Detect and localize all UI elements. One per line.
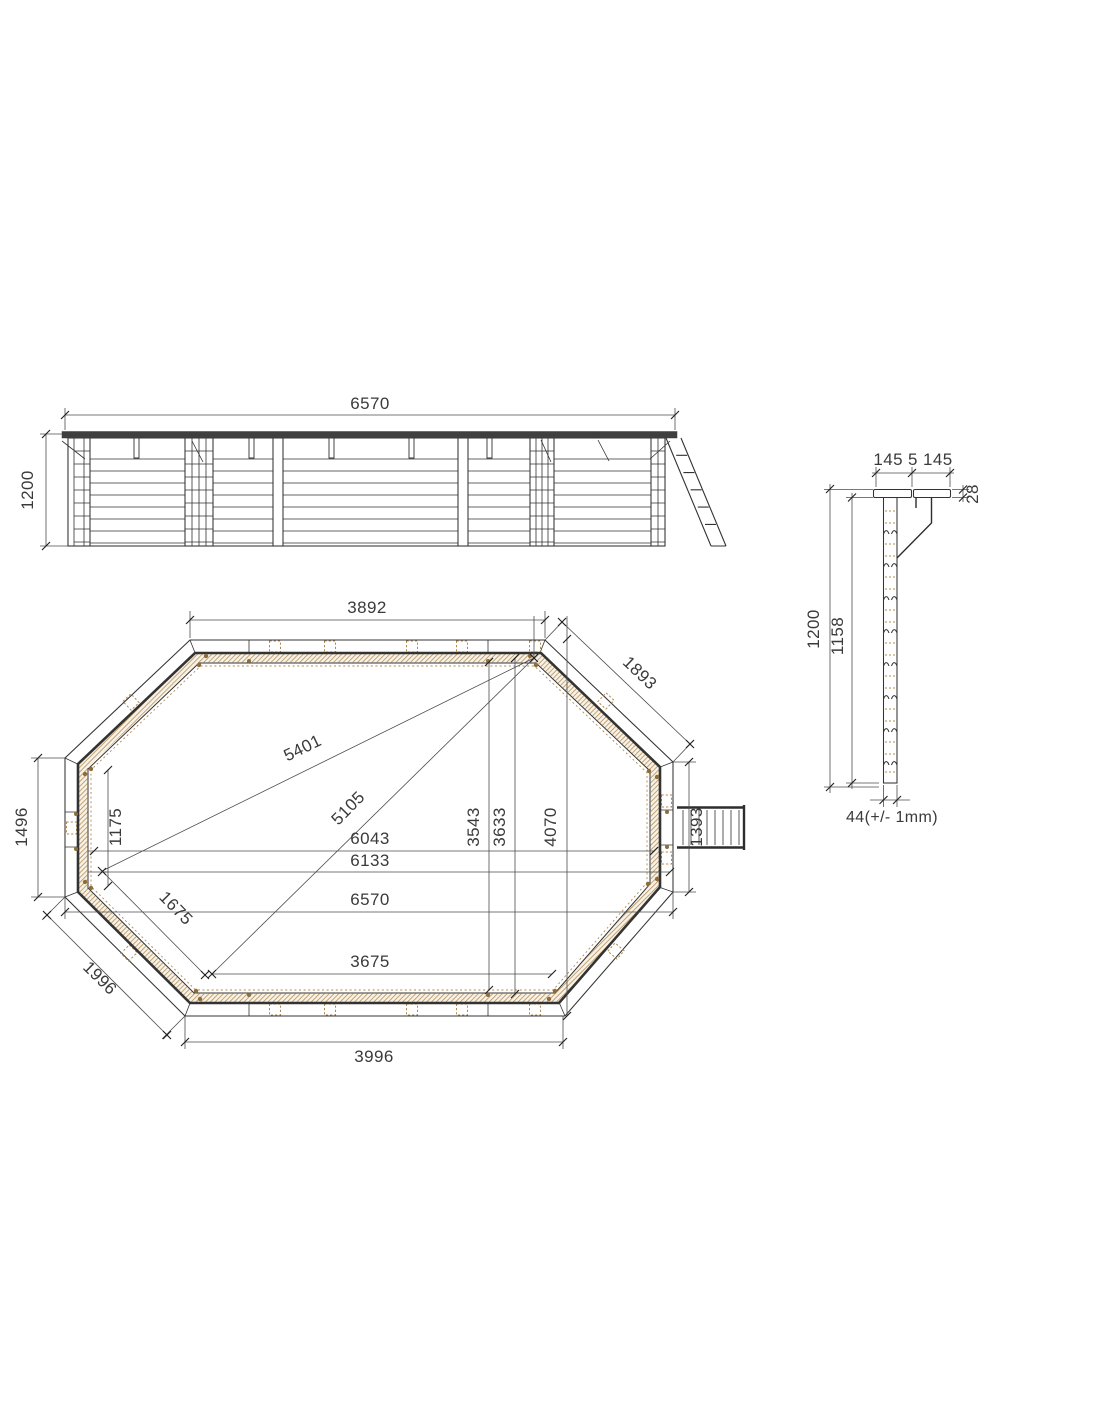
dim-ladder-width: 1393 <box>687 807 706 846</box>
dim-bottom-left-edge: 1996 <box>79 957 120 998</box>
support-brace <box>897 498 932 559</box>
pool-wall-body <box>68 438 665 546</box>
ladder-elevation <box>666 438 726 546</box>
plan-view: 3892 1893 1496 1996 3996 3675 6570 6133 … <box>12 598 744 1066</box>
dim-elevation-height: 1200 <box>18 470 37 509</box>
dim-elevation-width: 6570 <box>350 394 389 413</box>
vertical-post-1 <box>273 438 283 546</box>
dim-coping-widths: 145 5 145 <box>873 450 952 469</box>
dim-length-inner: 6043 <box>350 829 389 848</box>
dim-top-width: 3892 <box>347 598 386 617</box>
top-rail <box>62 432 677 439</box>
coping-board-right <box>914 490 951 498</box>
drawing-svg: 6570 1200 <box>0 0 1100 1422</box>
dim-height-b: 3633 <box>490 807 509 846</box>
dim-left-height: 1496 <box>12 807 31 846</box>
dim-height-wall: 1158 <box>828 617 847 655</box>
dim-height-a: 3543 <box>464 807 483 846</box>
coping-board-left <box>874 490 912 498</box>
dim-length-outer: 6570 <box>350 890 389 909</box>
elevation-view: 6570 1200 <box>18 394 726 550</box>
dim-height-c: 4070 <box>541 807 560 846</box>
vertical-post-2 <box>458 438 468 546</box>
dim-top-right-edge: 1893 <box>619 653 661 694</box>
dim-inner-bottom-width: 3675 <box>350 952 389 971</box>
pool-technical-drawing: 6570 1200 <box>0 0 1100 1422</box>
dim-plank-thickness: 44(+/- 1mm) <box>846 809 938 826</box>
section-view: 145 5 145 28 1200 1158 44(+/- 1mm) <box>804 450 982 826</box>
dim-height-total: 1200 <box>804 609 823 648</box>
dim-left-inner-height: 1175 <box>106 808 125 846</box>
octagon-inner-pool-edge <box>88 663 650 993</box>
dim-bottom-width: 3996 <box>354 1047 393 1066</box>
dim-coping-thickness: 28 <box>963 484 982 504</box>
dim-length-mid: 6133 <box>350 851 389 870</box>
wall-stack <box>884 498 898 784</box>
